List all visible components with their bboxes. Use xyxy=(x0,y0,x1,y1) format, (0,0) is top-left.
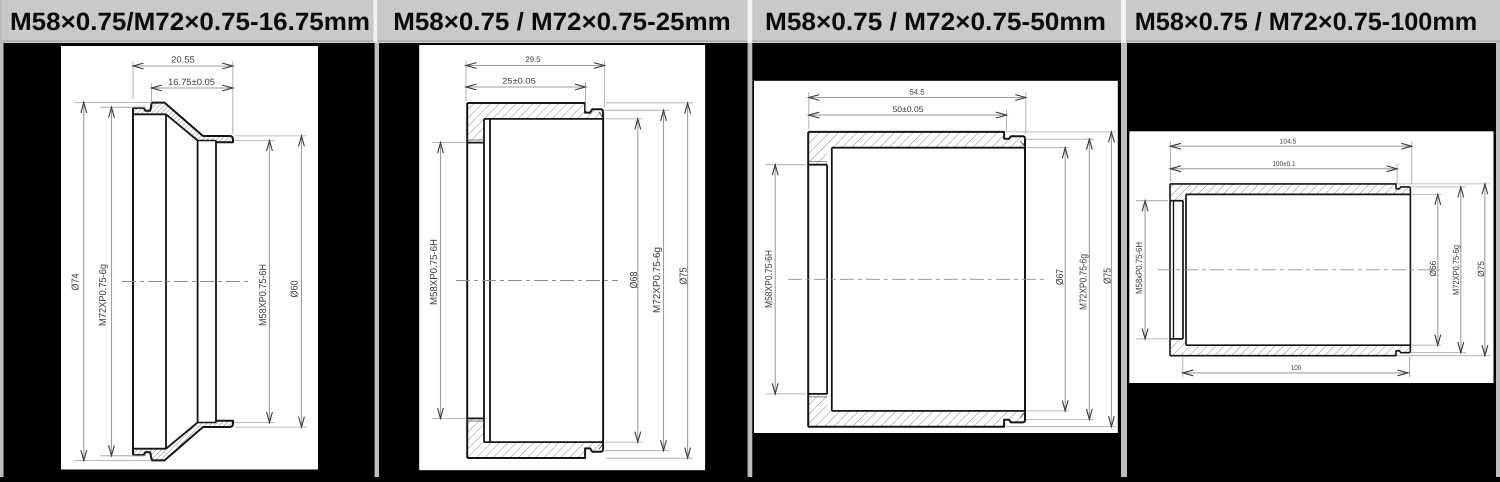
svg-text:25±0.05: 25±0.05 xyxy=(502,76,536,85)
svg-text:Ø67: Ø67 xyxy=(1055,269,1066,285)
svg-text:M58xP0.75-6H: M58xP0.75-6H xyxy=(1134,242,1144,294)
svg-text:104.5: 104.5 xyxy=(1280,138,1297,145)
svg-text:Ø60: Ø60 xyxy=(290,280,301,297)
svg-text:Ø75: Ø75 xyxy=(1476,261,1486,277)
svg-text:Ø74: Ø74 xyxy=(71,273,82,290)
svg-text:54.5: 54.5 xyxy=(910,87,926,96)
svg-text:Ø75: Ø75 xyxy=(1103,268,1114,284)
svg-text:M58XP0.75-6H: M58XP0.75-6H xyxy=(764,250,775,308)
svg-text:20.55: 20.55 xyxy=(171,55,195,65)
svg-text:M72XP0.75-6g: M72XP0.75-6g xyxy=(1451,245,1461,295)
svg-text:M58XP0.75-6H: M58XP0.75-6H xyxy=(258,264,269,326)
svg-text:M58×0.75 / M72×0.75-100mm: M58×0.75 / M72×0.75-100mm xyxy=(1135,8,1478,36)
svg-text:Ø75: Ø75 xyxy=(679,267,690,284)
svg-text:Ø66: Ø66 xyxy=(1428,261,1438,277)
svg-text:100: 100 xyxy=(1291,365,1302,372)
svg-text:M58×0.75/M72×0.75-16.75mm: M58×0.75/M72×0.75-16.75mm xyxy=(10,8,370,36)
svg-text:16.75±0.05: 16.75±0.05 xyxy=(168,77,215,87)
svg-text:29.5: 29.5 xyxy=(526,55,542,64)
svg-text:M58XP0.75-6H: M58XP0.75-6H xyxy=(429,239,440,305)
svg-text:M72XP0.75-6g: M72XP0.75-6g xyxy=(98,264,109,326)
svg-text:Ø68: Ø68 xyxy=(629,271,640,288)
svg-text:M72XP0.75-6g: M72XP0.75-6g xyxy=(1079,254,1090,310)
svg-text:100±0.1: 100±0.1 xyxy=(1273,161,1296,168)
svg-text:M58×0.75 / M72×0.75-50mm: M58×0.75 / M72×0.75-50mm xyxy=(765,8,1106,36)
svg-text:M58×0.75 / M72×0.75-25mm: M58×0.75 / M72×0.75-25mm xyxy=(393,8,731,36)
svg-text:50±0.05: 50±0.05 xyxy=(893,105,925,114)
svg-text:M72XP0.75-6g: M72XP0.75-6g xyxy=(652,247,663,313)
